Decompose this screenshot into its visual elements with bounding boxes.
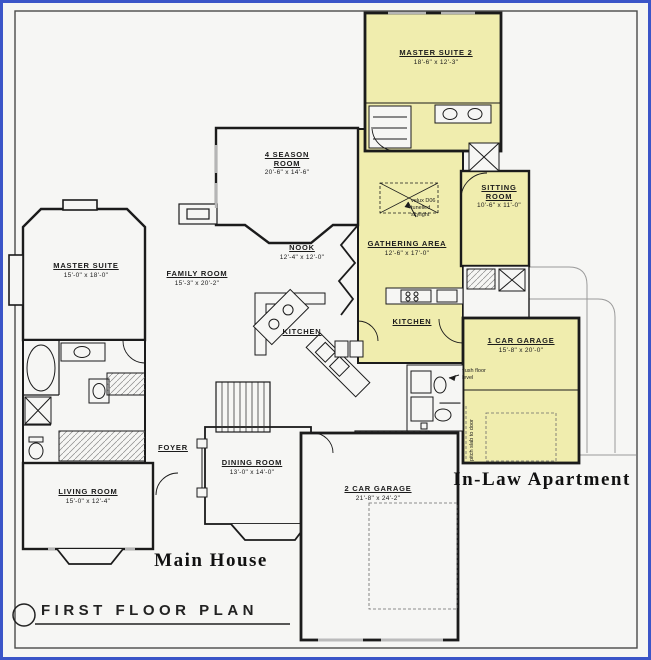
inlaw-closet [467, 269, 495, 289]
title-mark [13, 604, 290, 626]
four-season-room-room [216, 128, 358, 243]
inlaw-bath [407, 365, 463, 431]
dining-room-room [205, 427, 311, 524]
master-bath [23, 340, 145, 463]
dining-bay [231, 524, 307, 540]
inlaw-wing [358, 13, 579, 463]
closet-hatch [107, 373, 145, 395]
gathering-area-room [358, 129, 463, 363]
sitting-room-room [461, 171, 529, 266]
closet-hatch [59, 431, 145, 461]
main-staircase [216, 382, 270, 432]
fireplace [179, 204, 217, 224]
living-room-room [23, 463, 153, 549]
chimney-bump [63, 200, 97, 210]
living-bay [57, 549, 123, 564]
wall-bump [9, 255, 23, 305]
inlaw-shower [499, 269, 525, 291]
floorplan-drawing [3, 3, 648, 657]
inlaw-kitchen-counter [386, 288, 463, 304]
plan-sheet: MASTER SUITE 2 18'-6" x 12'-3" 4 SEASON … [0, 0, 651, 660]
main-kitchen [253, 289, 369, 396]
nook-bay-wall [339, 225, 358, 315]
master-suite-room [23, 209, 145, 340]
